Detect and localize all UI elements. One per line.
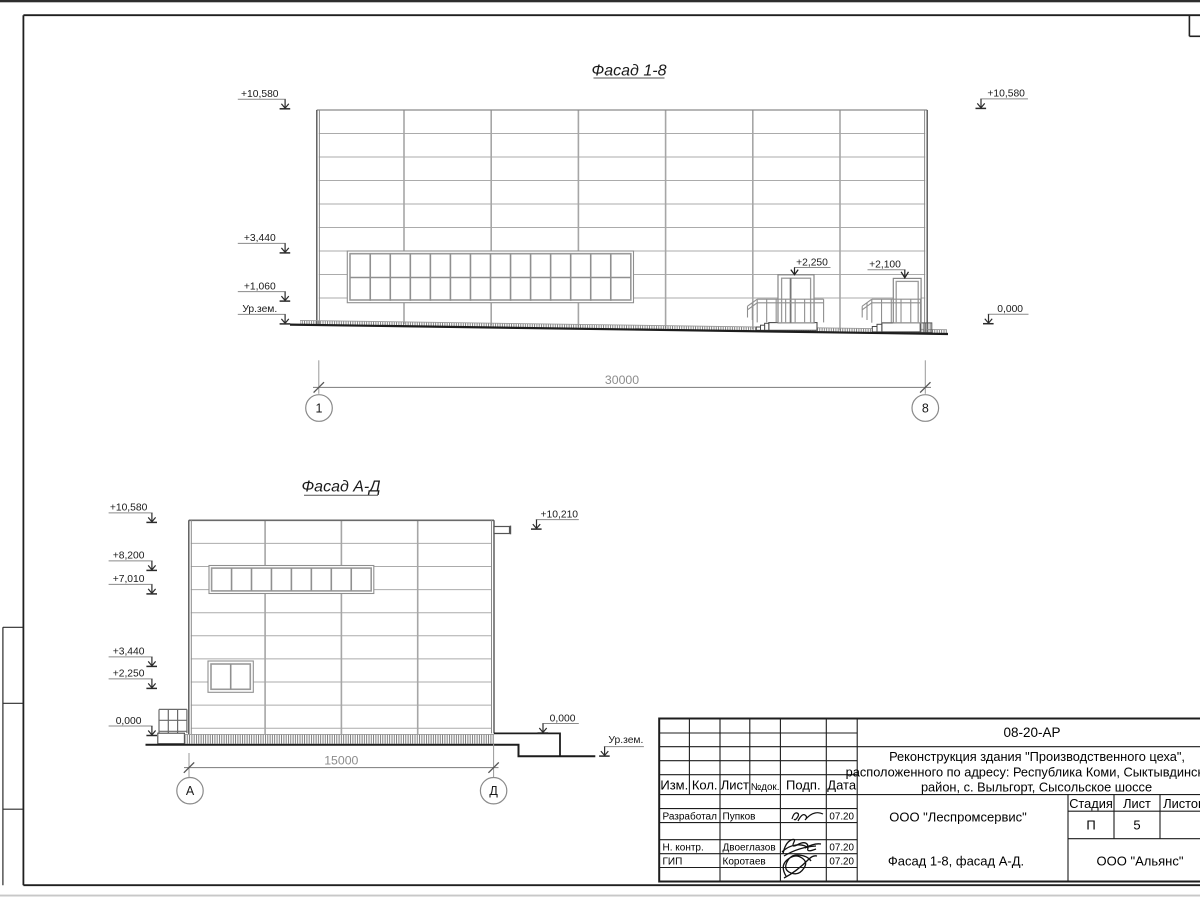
- svg-text:Разработал: Разработал: [663, 810, 718, 822]
- svg-text:+1,060: +1,060: [244, 281, 276, 292]
- svg-text:07.20: 07.20: [829, 843, 854, 854]
- svg-text:А: А: [186, 784, 195, 798]
- svg-text:Дата: Дата: [827, 777, 857, 792]
- svg-text:Фасад 1-8: Фасад 1-8: [592, 62, 667, 79]
- svg-text:Лист: Лист: [1123, 796, 1151, 811]
- svg-text:0,000: 0,000: [116, 716, 142, 727]
- svg-text:П: П: [1086, 818, 1095, 833]
- svg-text:5: 5: [1133, 818, 1140, 833]
- svg-text:+2,100: +2,100: [869, 259, 901, 270]
- svg-text:+10,210: +10,210: [541, 509, 579, 520]
- svg-text:+7,010: +7,010: [113, 574, 145, 585]
- svg-text:№док.: №док.: [751, 782, 780, 793]
- svg-text:0,000: 0,000: [997, 304, 1023, 315]
- svg-text:+10,580: +10,580: [241, 89, 279, 100]
- svg-text:ГИП: ГИП: [663, 856, 683, 867]
- svg-text:+10,580: +10,580: [110, 503, 148, 514]
- svg-text:Пупков: Пупков: [723, 811, 756, 822]
- svg-text:+2,250: +2,250: [113, 669, 145, 680]
- svg-text:район, с. Выльгорт, Сысольское: район, с. Выльгорт, Сысольское шоссе: [921, 780, 1152, 795]
- svg-text:Кол.: Кол.: [692, 777, 718, 792]
- svg-text:+3,440: +3,440: [113, 647, 145, 658]
- svg-text:расположенного по адресу: Респ: расположенного по адресу: Республика Ком…: [846, 764, 1200, 779]
- svg-text:07.20: 07.20: [829, 856, 854, 867]
- svg-text:Ур.зем.: Ур.зем.: [608, 735, 643, 746]
- svg-text:Стадия: Стадия: [1069, 796, 1113, 811]
- svg-text:+10,580: +10,580: [987, 89, 1025, 100]
- svg-text:Изм.: Изм.: [660, 777, 688, 792]
- svg-text:Подп.: Подп.: [786, 777, 821, 792]
- svg-text:ООО "Альянс": ООО "Альянс": [1097, 853, 1184, 868]
- svg-text:Лист: Лист: [721, 777, 749, 792]
- svg-text:Листов: Листов: [1163, 796, 1200, 811]
- svg-text:Реконструкция здания "Производ: Реконструкция здания "Производственного …: [889, 749, 1185, 764]
- svg-text:0,000: 0,000: [550, 713, 576, 724]
- svg-text:08-20-АР: 08-20-АР: [1003, 725, 1060, 740]
- svg-text:+2,250: +2,250: [796, 257, 828, 268]
- svg-text:Фасад 1-8, фасад А-Д.: Фасад 1-8, фасад А-Д.: [888, 853, 1024, 868]
- svg-text:Двоеглазов: Двоеглазов: [723, 843, 776, 854]
- svg-text:07.20: 07.20: [829, 811, 854, 822]
- svg-text:30000: 30000: [605, 373, 639, 387]
- svg-text:Ур.зем.: Ур.зем.: [242, 304, 277, 315]
- svg-text:+3,440: +3,440: [244, 233, 276, 244]
- svg-text:Коротаев: Коротаев: [723, 856, 766, 867]
- svg-text:ООО "Леспромсервис": ООО "Леспромсервис": [889, 810, 1027, 825]
- svg-text:Фасад А-Д: Фасад А-Д: [301, 479, 380, 496]
- svg-text:Д: Д: [489, 784, 498, 798]
- svg-text:15000: 15000: [324, 753, 358, 767]
- svg-text:1: 1: [316, 401, 323, 415]
- svg-text:Н. контр.: Н. контр.: [663, 843, 704, 854]
- svg-text:+8,200: +8,200: [113, 551, 145, 562]
- svg-text:8: 8: [922, 401, 929, 415]
